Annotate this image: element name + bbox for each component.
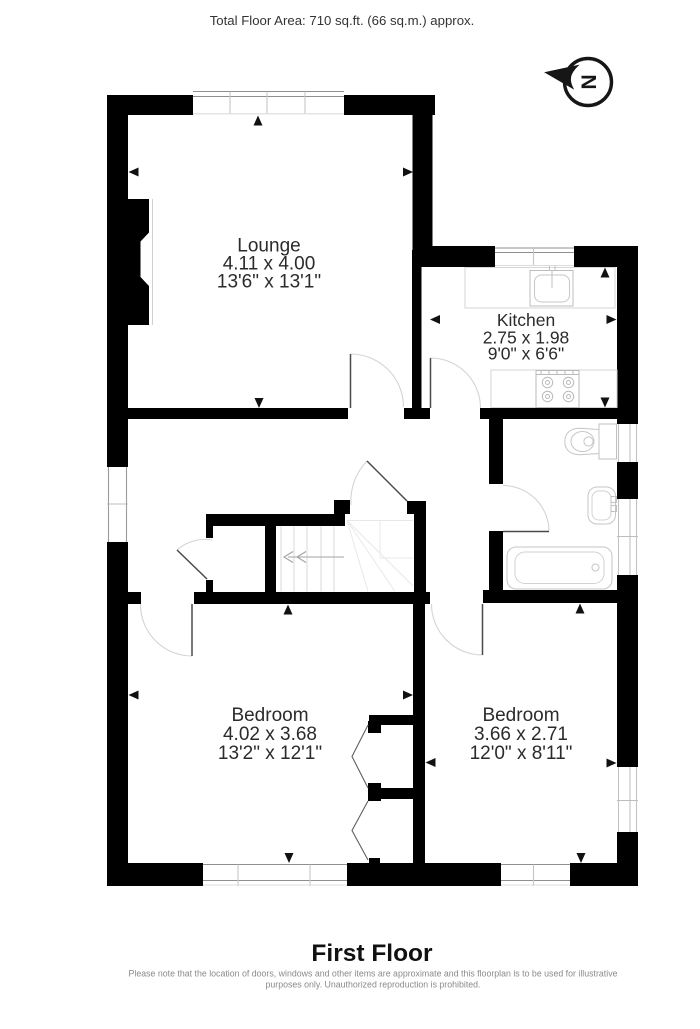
svg-text:13'2" x 12'1": 13'2" x 12'1" — [218, 743, 322, 764]
svg-text:9'0" x 6'6": 9'0" x 6'6" — [488, 344, 565, 364]
svg-text:Total Floor Area: 710 sq.ft. (: Total Floor Area: 710 sq.ft. (66 sq.m.) … — [210, 13, 475, 28]
svg-text:N: N — [577, 74, 600, 89]
svg-text:13'6" x 13'1": 13'6" x 13'1" — [217, 272, 321, 293]
svg-text:4.02 x 3.68: 4.02 x 3.68 — [223, 724, 317, 745]
svg-text:Please note that the location: Please note that the location of doors, … — [129, 969, 618, 979]
svg-text:3.66 x 2.71: 3.66 x 2.71 — [474, 724, 568, 745]
svg-text:Bedroom: Bedroom — [231, 705, 308, 726]
svg-text:Bedroom: Bedroom — [482, 705, 559, 726]
svg-text:First Floor: First Floor — [311, 940, 433, 967]
svg-text:purposes only. Unauthorized re: purposes only. Unauthorized reproduction… — [266, 980, 481, 990]
svg-text:12'0" x 8'11": 12'0" x 8'11" — [470, 743, 573, 764]
